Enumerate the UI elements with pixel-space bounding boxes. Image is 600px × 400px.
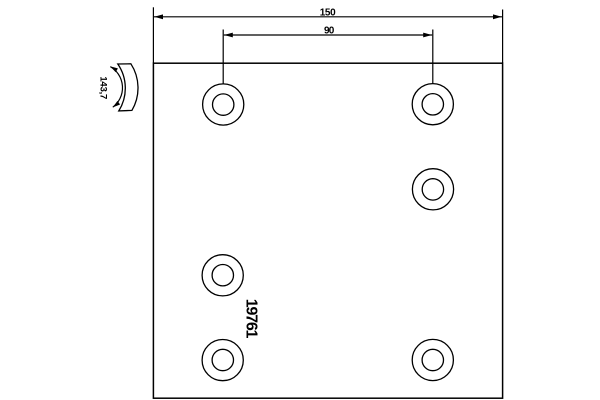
svg-text:90: 90 [324, 25, 335, 36]
svg-text:19761: 19761 [243, 299, 260, 339]
svg-text:150: 150 [320, 8, 336, 19]
svg-text:143,7: 143,7 [97, 76, 108, 99]
